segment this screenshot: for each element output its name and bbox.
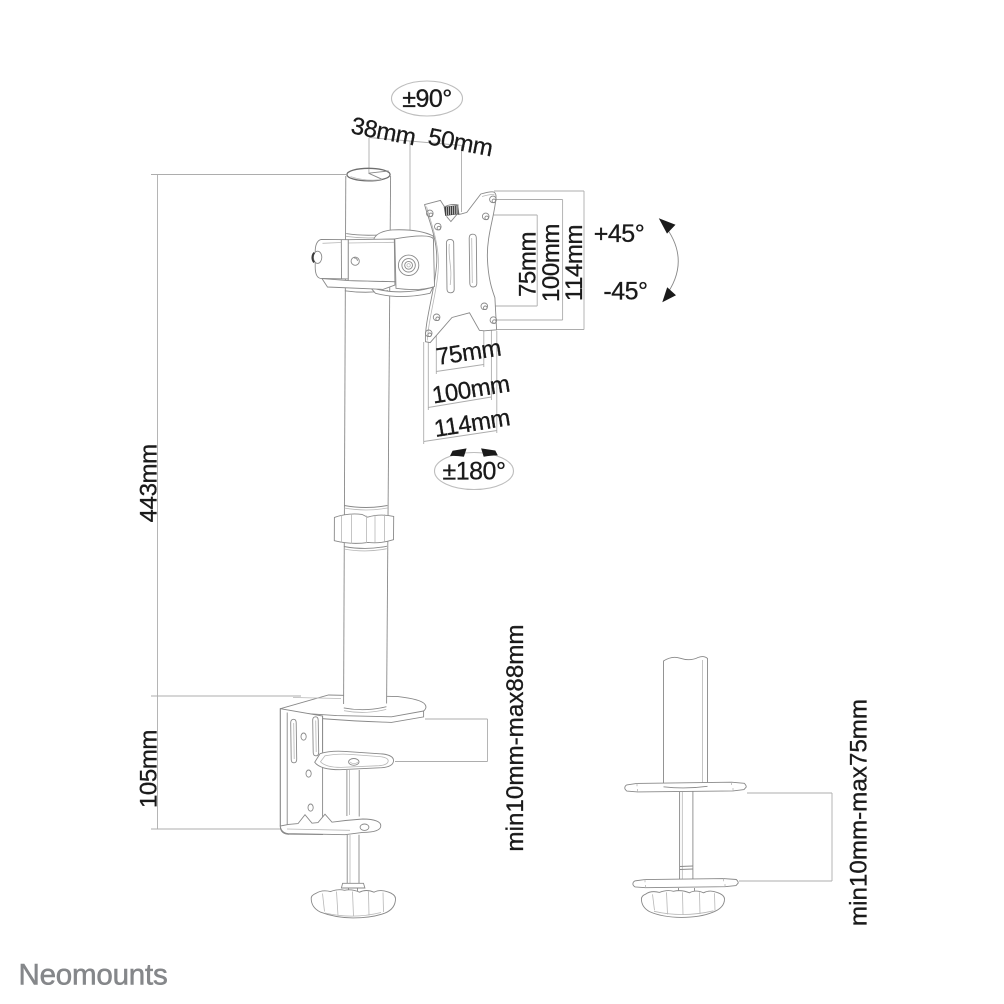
svg-text:±90°: ±90°: [402, 85, 452, 113]
svg-text:±180°: ±180°: [443, 458, 506, 486]
svg-text:min10mm-max88mm: min10mm-max88mm: [502, 624, 529, 851]
svg-text:-45°: -45°: [603, 278, 647, 306]
svg-text:114mm: 114mm: [561, 225, 588, 301]
svg-text:+45°: +45°: [594, 220, 644, 248]
svg-text:min10mm-max75mm: min10mm-max75mm: [846, 699, 873, 926]
svg-text:443mm: 443mm: [136, 444, 163, 522]
svg-text:Neomounts: Neomounts: [19, 959, 168, 992]
svg-text:105mm: 105mm: [136, 730, 163, 808]
